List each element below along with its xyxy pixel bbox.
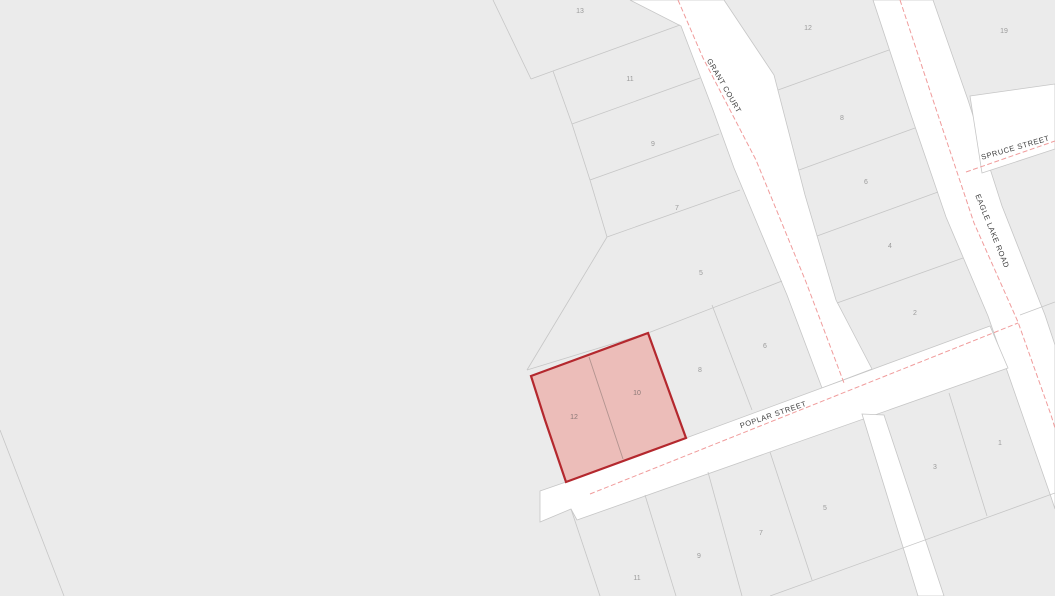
highlighted-lot-number: 12 bbox=[570, 414, 578, 421]
lot-number: 5 bbox=[699, 270, 703, 277]
lot-number: 4 bbox=[888, 243, 892, 250]
lot-number: 12 bbox=[804, 25, 812, 32]
lot-number: 6 bbox=[864, 179, 868, 186]
lot-number: 8 bbox=[840, 115, 844, 122]
lot-number: 7 bbox=[675, 205, 679, 212]
lot-number: 11 bbox=[633, 575, 640, 582]
lot-number: 9 bbox=[697, 553, 701, 560]
lot-number: 9 bbox=[651, 141, 655, 148]
lot-number: 6 bbox=[763, 343, 767, 350]
lot-number: 13 bbox=[576, 8, 584, 15]
lot-number: 19 bbox=[1000, 28, 1008, 35]
lot-number: 2 bbox=[913, 310, 917, 317]
lot-number: 5 bbox=[823, 505, 827, 512]
lot-number: 3 bbox=[933, 464, 937, 471]
lot-number: 11 bbox=[626, 76, 633, 83]
highlighted-lot-number: 10 bbox=[633, 390, 641, 397]
map-canvas[interactable]: 1210131197512864219863111975GRANT COURTE… bbox=[0, 0, 1055, 596]
lot-number: 1 bbox=[998, 440, 1002, 447]
lot-number: 7 bbox=[759, 530, 763, 537]
lot-number: 8 bbox=[698, 367, 702, 374]
parcel-map-svg[interactable]: 1210131197512864219863111975GRANT COURTE… bbox=[0, 0, 1055, 596]
